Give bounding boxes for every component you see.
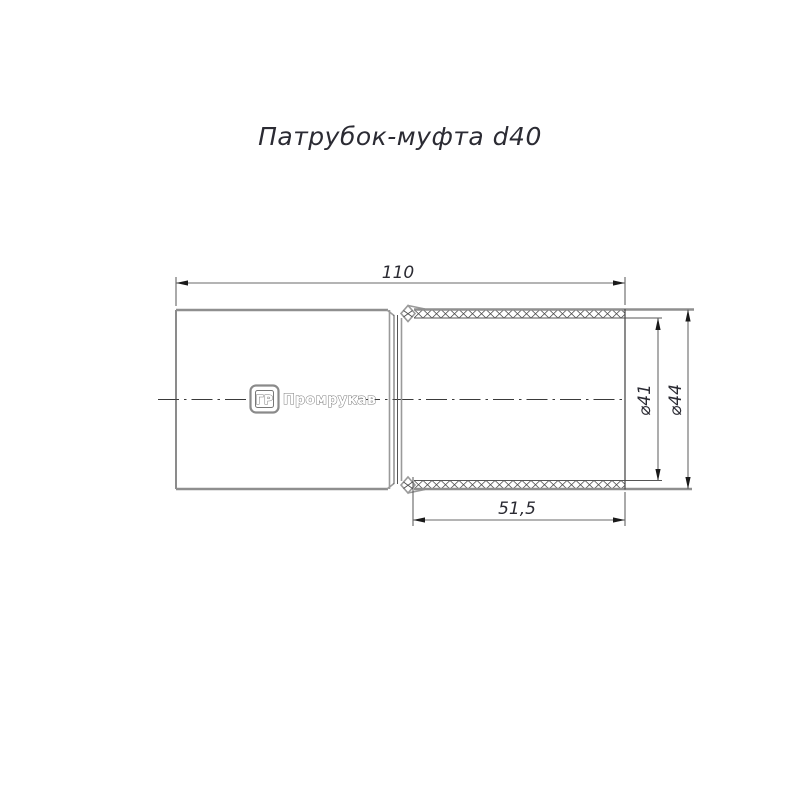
corrugated-wall-top: [414, 310, 694, 319]
arrow-bottom: [685, 477, 690, 489]
dimension-value-110: 110: [382, 263, 414, 283]
logo-brand-name: Промрукав: [283, 392, 376, 408]
dimension-value-51-5: 51,5: [498, 499, 536, 519]
arrow-top: [655, 318, 660, 330]
socket-chamfer-bottom: [387, 484, 394, 490]
arrow-right: [613, 517, 625, 522]
drawing-title: Патрубок-муфта d40: [258, 122, 542, 151]
manufacturer-logo: ГР Промрукав: [247, 384, 376, 415]
arrow-left: [413, 517, 425, 522]
dimension-value-d41: ⌀41: [635, 384, 655, 416]
technical-drawing-canvas: Патрубок-муфта d40: [0, 0, 800, 800]
logo-badge-letters: ГР: [256, 392, 274, 407]
dimension-value-d44: ⌀44: [666, 384, 686, 416]
arrow-bottom: [655, 469, 660, 481]
socket-chamfer-top: [387, 310, 394, 316]
drawing-page: Патрубок-муфта d40: [0, 0, 800, 800]
dimension-inner-diameter: ⌀41: [635, 318, 661, 481]
dimension-overall-length: 110: [176, 263, 625, 306]
dimension-outer-diameter: ⌀44: [666, 310, 691, 490]
arrow-top: [685, 310, 690, 322]
corrugated-wall-bottom: [414, 481, 692, 490]
arrow-left: [176, 280, 188, 285]
arrow-right: [613, 280, 625, 285]
